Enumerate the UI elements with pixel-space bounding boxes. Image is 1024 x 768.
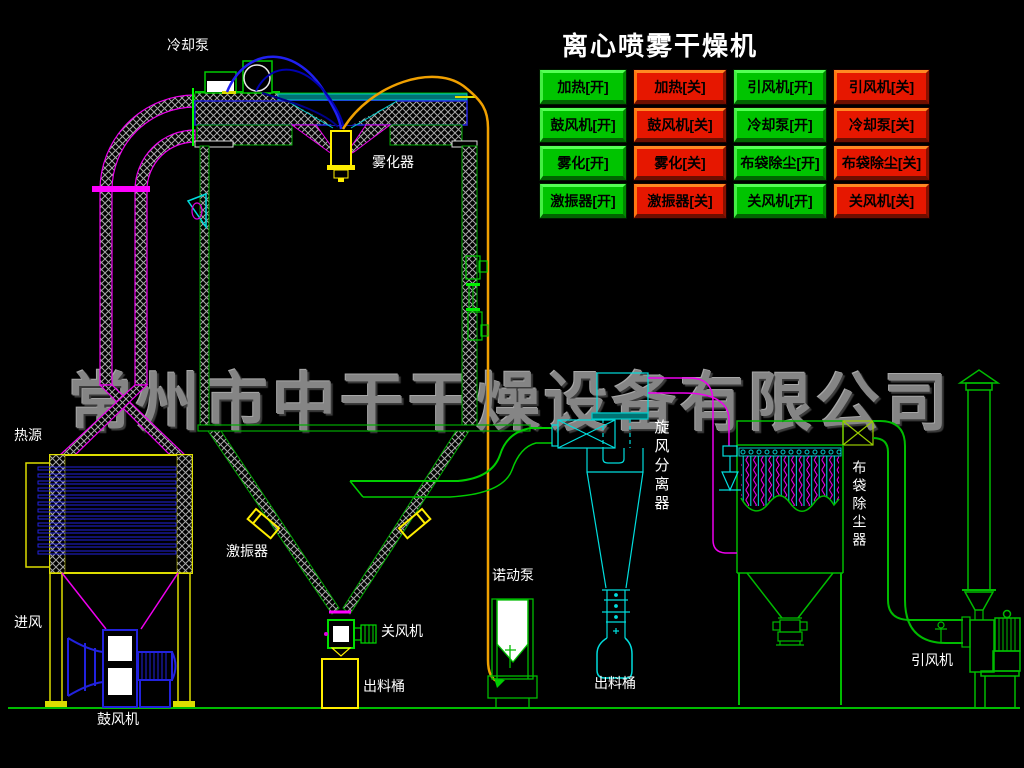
label-discharge-barrel-2: 出料桶: [594, 676, 636, 691]
cyclone-separator: [552, 373, 648, 678]
page-title: 离心喷雾干燥机: [562, 26, 758, 63]
button-blower-on[interactable]: 鼓风机[开]: [540, 108, 626, 142]
feed-pipe: [343, 77, 505, 688]
rotary-valve: [324, 620, 376, 656]
button-coolpump-off[interactable]: 冷却泵[关]: [834, 108, 929, 142]
button-heat-on[interactable]: 加热[开]: [540, 70, 626, 104]
label-blower: 鼓风机: [97, 712, 139, 727]
button-coolpump-on[interactable]: 冷却泵[开]: [734, 108, 826, 142]
label-induced-draft-fan: 引风机: [911, 653, 953, 668]
button-rotaryvalve-on[interactable]: 关风机[开]: [734, 184, 826, 218]
label-atomizer: 雾化器: [372, 155, 414, 170]
feed-pump-vessel: [488, 599, 537, 707]
control-button-grid: 加热[开] 加热[关] 引风机[开] 引风机[关] 鼓风机[开] 鼓风机[关] …: [540, 70, 929, 218]
button-heat-off[interactable]: 加热[关]: [634, 70, 726, 104]
button-idfan-off[interactable]: 引风机[关]: [834, 70, 929, 104]
button-atomize-on[interactable]: 雾化[开]: [540, 146, 626, 180]
button-atomize-off[interactable]: 雾化[关]: [634, 146, 726, 180]
button-vibrator-off[interactable]: 激振器[关]: [634, 184, 726, 218]
hot-air-ducts: [60, 95, 195, 455]
label-rotary-valve: 关风机: [381, 624, 423, 639]
blower-fan: [68, 630, 176, 707]
label-cyclone-separator: 旋风分离器: [652, 419, 669, 514]
button-bagfilter-on[interactable]: 布袋除尘[开]: [734, 146, 826, 180]
label-cooling-pump: 冷却泵: [167, 38, 209, 53]
label-air-inlet: 进风: [14, 615, 42, 630]
atomizer-device: [327, 131, 355, 182]
label-vibrator: 激振器: [226, 544, 268, 559]
induced-draft-fan: [970, 611, 1020, 708]
discharge-barrel-tower: [322, 659, 358, 708]
label-heat-source: 热源: [14, 428, 42, 443]
button-rotaryvalve-off[interactable]: 关风机[关]: [834, 184, 929, 218]
exhaust-stack: [960, 370, 998, 620]
button-idfan-on[interactable]: 引风机[开]: [734, 70, 826, 104]
button-blower-off[interactable]: 鼓风机[关]: [634, 108, 726, 142]
button-vibrator-on[interactable]: 激振器[开]: [540, 184, 626, 218]
exhaust-duct: [873, 421, 970, 647]
label-discharge-barrel-1: 出料桶: [363, 679, 405, 694]
label-bag-filter: 布袋除尘器: [851, 460, 866, 550]
label-peristaltic-pump: 诺动泵: [492, 568, 534, 583]
button-bagfilter-off[interactable]: 布袋除尘[关]: [834, 146, 929, 180]
